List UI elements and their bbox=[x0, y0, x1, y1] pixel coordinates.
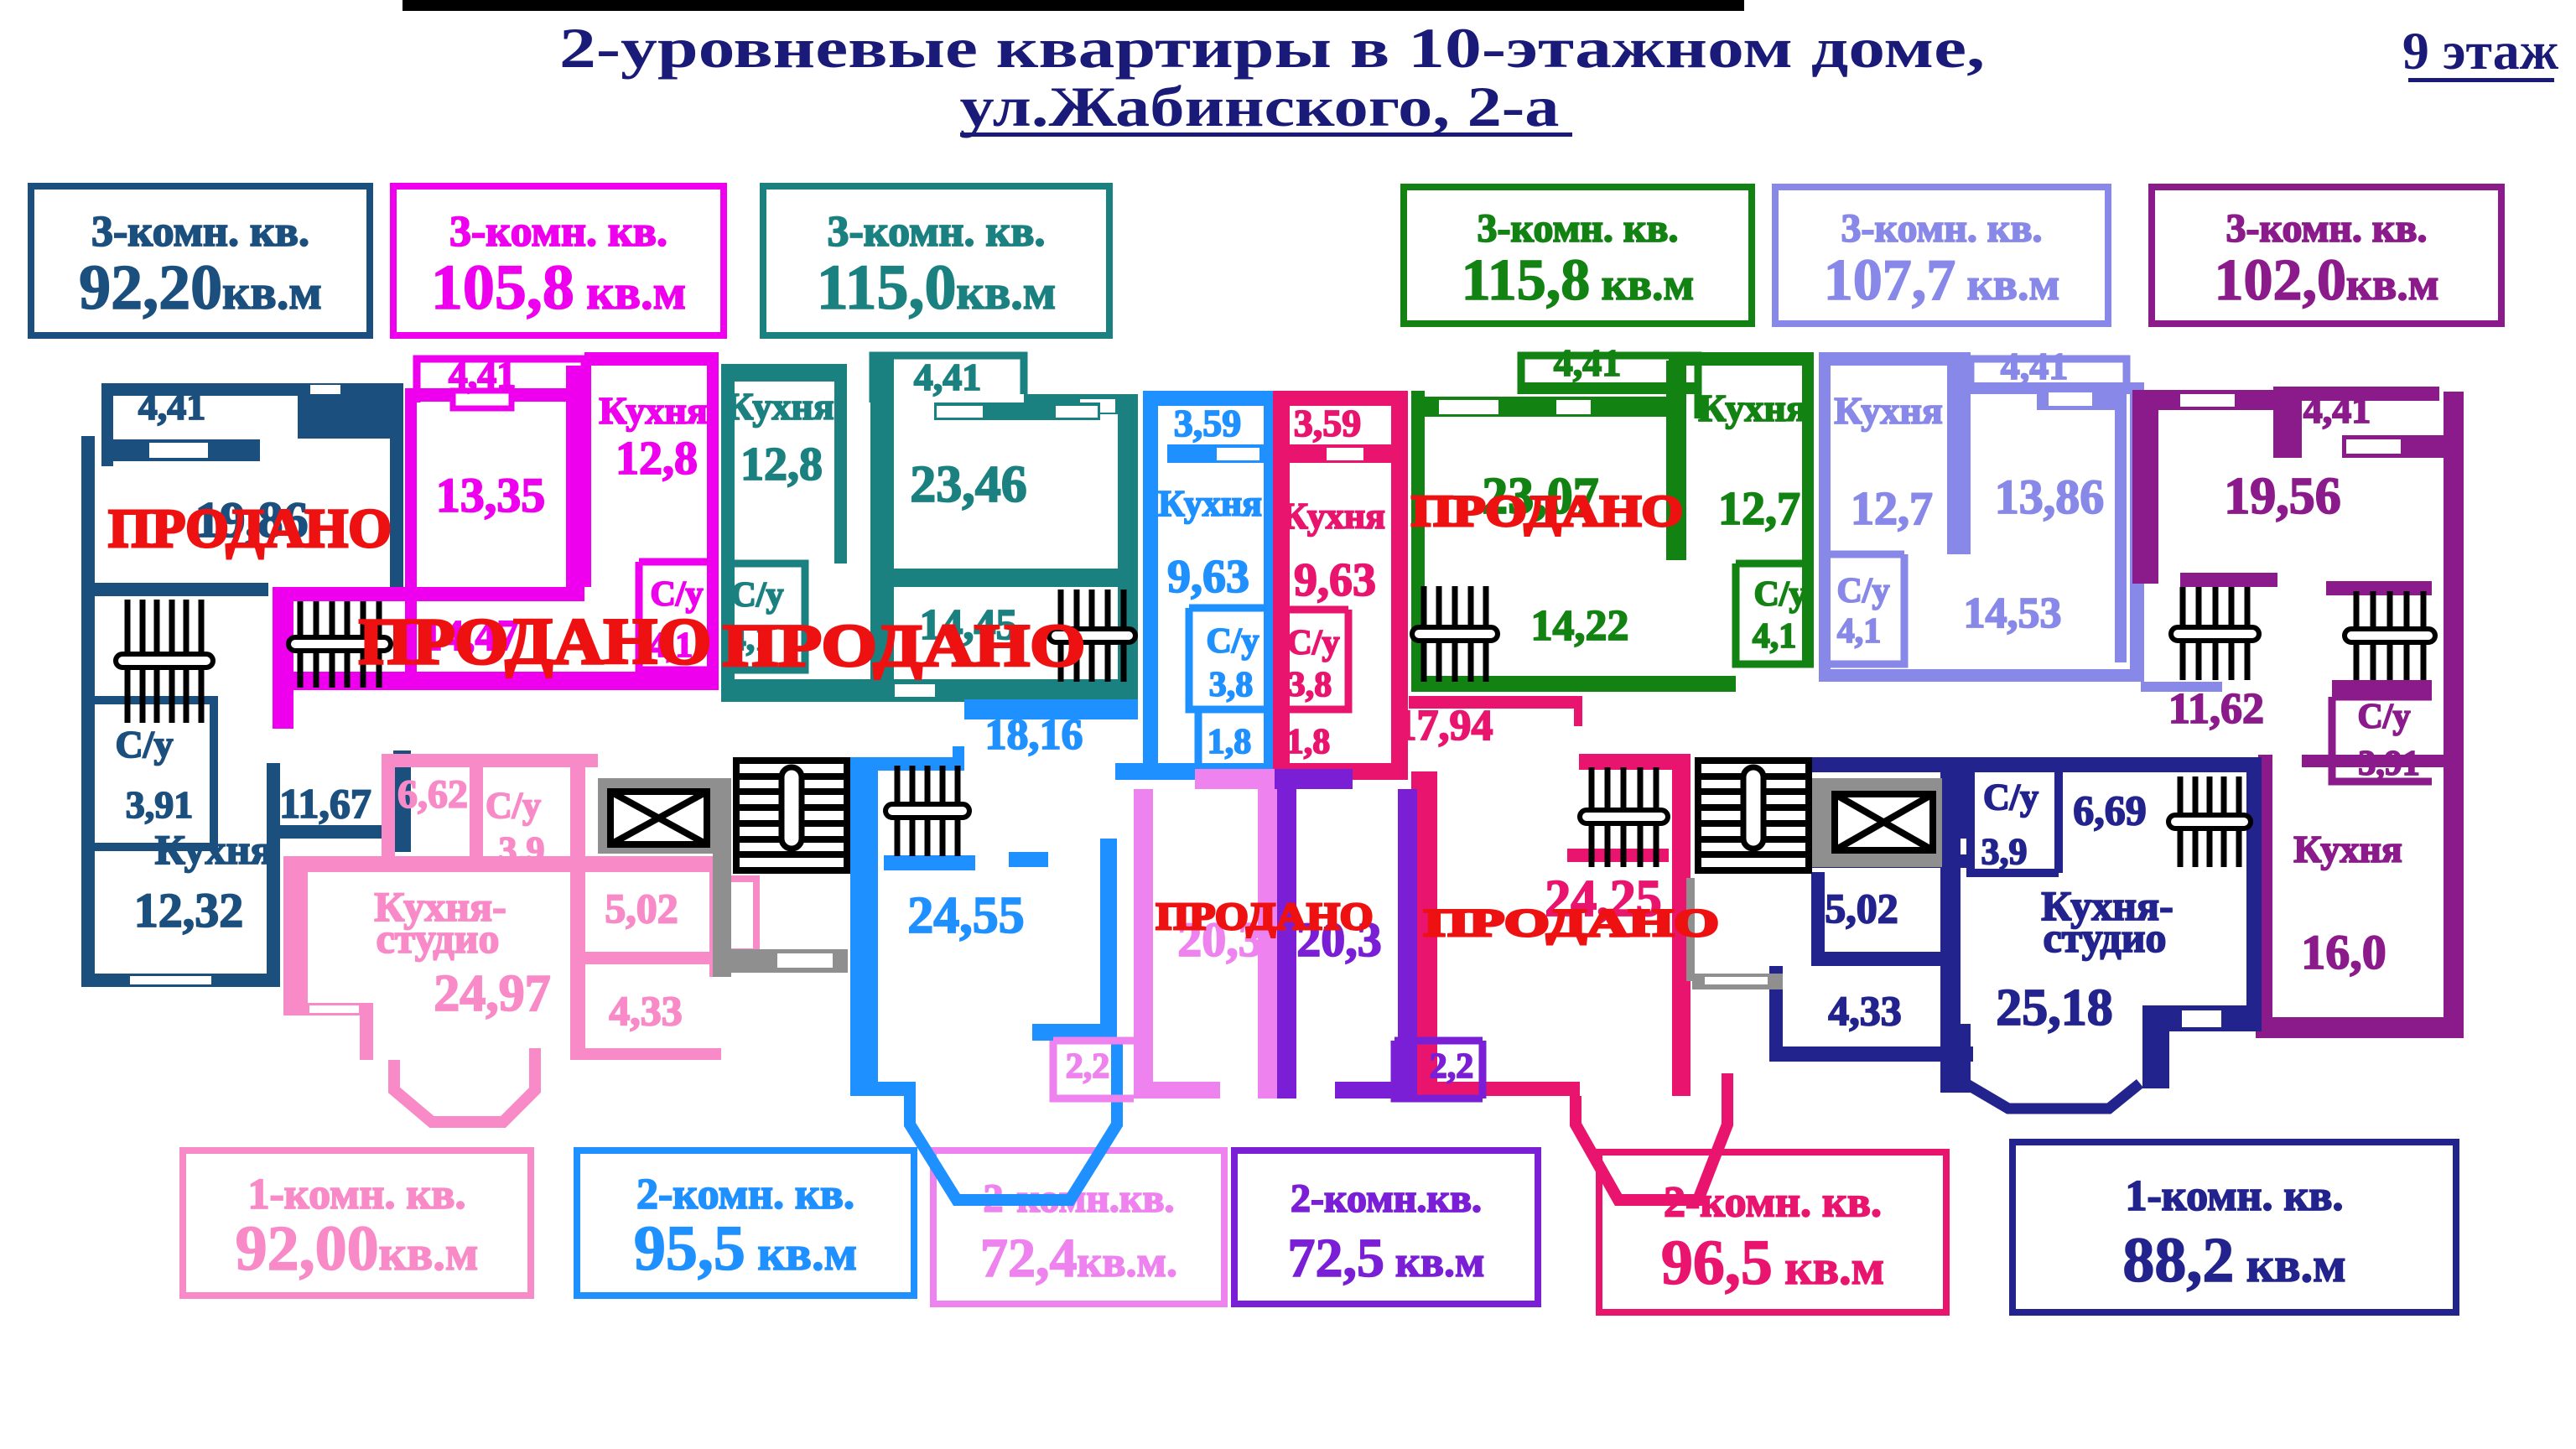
svg-text:5,02: 5,02 bbox=[1825, 885, 1898, 932]
svg-text:3,9: 3,9 bbox=[1981, 831, 2028, 872]
svg-text:17,94: 17,94 bbox=[1395, 702, 1493, 750]
svg-text:3,8: 3,8 bbox=[1209, 666, 1254, 704]
svg-text:16,0: 16,0 bbox=[2301, 925, 2386, 979]
svg-text:24,97: 24,97 bbox=[434, 965, 551, 1022]
svg-text:С/у: С/у bbox=[1837, 572, 1890, 610]
svg-text:12,8: 12,8 bbox=[615, 433, 698, 485]
svg-text:3-комн. кв.: 3-комн. кв. bbox=[827, 208, 1045, 256]
svg-text:С/у: С/у bbox=[1983, 776, 2038, 818]
svg-text:Кухня: Кухня bbox=[2293, 828, 2402, 870]
svg-text:14,22: 14,22 bbox=[1531, 602, 1629, 650]
svg-text:ПРОДАНО: ПРОДАНО bbox=[1424, 901, 1719, 945]
svg-text:2-уровневые квартиры в 10-этаж: 2-уровневые квартиры в 10-этажном доме, bbox=[559, 16, 1985, 80]
svg-text:5,02: 5,02 bbox=[605, 885, 678, 932]
svg-text:3,59: 3,59 bbox=[1294, 402, 1362, 444]
svg-text:12,7: 12,7 bbox=[1718, 483, 1800, 535]
svg-text:4,33: 4,33 bbox=[1828, 987, 1902, 1034]
svg-text:1,8: 1,8 bbox=[1286, 723, 1331, 761]
svg-text:2,2: 2,2 bbox=[1430, 1047, 1474, 1086]
svg-text:4,41: 4,41 bbox=[138, 385, 206, 428]
svg-text:3-комн. кв.: 3-комн. кв. bbox=[1841, 206, 2042, 251]
svg-text:ПРОДАНО: ПРОДАНО bbox=[359, 605, 712, 678]
svg-text:3-комн. кв.: 3-комн. кв. bbox=[91, 208, 309, 256]
svg-text:ПРОДАНО: ПРОДАНО bbox=[723, 612, 1086, 679]
svg-text:2,2: 2,2 bbox=[1066, 1047, 1110, 1086]
svg-text:4,41: 4,41 bbox=[449, 353, 517, 396]
svg-text:4,41: 4,41 bbox=[1554, 341, 1622, 384]
svg-text:С/у: С/у bbox=[486, 785, 541, 826]
svg-text:4,33: 4,33 bbox=[609, 987, 683, 1034]
svg-text:4,1: 4,1 bbox=[1753, 617, 1797, 656]
svg-text:Кухня: Кухня bbox=[1158, 483, 1262, 524]
svg-text:3,91: 3,91 bbox=[126, 783, 194, 826]
svg-text:Кухня: Кухня bbox=[1698, 387, 1807, 429]
svg-text:С/у: С/у bbox=[1287, 624, 1340, 662]
svg-text:С/у: С/у bbox=[1207, 622, 1259, 661]
svg-text:1,8: 1,8 bbox=[1207, 723, 1252, 761]
svg-text:11,67: 11,67 bbox=[279, 780, 371, 827]
svg-text:3-комн. кв.: 3-комн. кв. bbox=[1477, 206, 1678, 251]
svg-text:С/у: С/у bbox=[116, 723, 174, 766]
svg-text:24,55: 24,55 bbox=[907, 887, 1025, 944]
svg-text:Кухня: Кухня bbox=[1281, 496, 1385, 537]
svg-text:студио: студио bbox=[2043, 914, 2166, 961]
svg-text:студио: студио bbox=[376, 915, 499, 962]
svg-text:ул.Жабинского, 2-а: ул.Жабинского, 2-а bbox=[960, 75, 1560, 138]
svg-text:3,9: 3,9 bbox=[499, 829, 545, 870]
svg-text:11,62: 11,62 bbox=[2168, 685, 2264, 733]
svg-text:9 этаж: 9 этаж bbox=[2402, 21, 2559, 80]
svg-text:2-комн.кв.: 2-комн.кв. bbox=[1291, 1176, 1482, 1221]
svg-text:14,53: 14,53 bbox=[1964, 589, 2062, 637]
svg-text:12,8: 12,8 bbox=[740, 439, 823, 491]
svg-text:Кухня: Кухня bbox=[725, 385, 834, 428]
svg-text:4,41: 4,41 bbox=[914, 356, 982, 398]
svg-text:1-комн. кв.: 1-комн. кв. bbox=[2125, 1172, 2343, 1220]
svg-text:3-комн. кв.: 3-комн. кв. bbox=[2225, 206, 2427, 251]
svg-text:ПРОДАНО: ПРОДАНО bbox=[1411, 487, 1683, 536]
svg-text:3,59: 3,59 bbox=[1174, 402, 1242, 444]
svg-text:ПРОДАНО: ПРОДАНО bbox=[1156, 895, 1374, 937]
svg-text:ПРОДАНО: ПРОДАНО bbox=[108, 498, 392, 559]
svg-text:19,56: 19,56 bbox=[2224, 468, 2341, 525]
svg-text:4,41: 4,41 bbox=[2303, 388, 2371, 431]
svg-text:9,63: 9,63 bbox=[1167, 551, 1249, 603]
svg-text:С/у: С/у bbox=[2358, 698, 2411, 736]
svg-text:12,32: 12,32 bbox=[134, 883, 244, 937]
svg-text:9,63: 9,63 bbox=[1294, 554, 1376, 606]
svg-text:Кухня: Кухня bbox=[1834, 389, 1943, 432]
svg-text:6,62: 6,62 bbox=[397, 772, 468, 817]
svg-text:25,18: 25,18 bbox=[1996, 979, 2113, 1036]
svg-text:Кухня: Кухня bbox=[155, 826, 273, 873]
svg-text:1-комн. кв.: 1-комн. кв. bbox=[247, 1171, 465, 1218]
svg-text:С/у: С/у bbox=[731, 576, 784, 615]
svg-text:12,7: 12,7 bbox=[1851, 483, 1933, 535]
svg-text:13,86: 13,86 bbox=[1995, 470, 2105, 524]
svg-text:2-комн. кв.: 2-комн. кв. bbox=[636, 1171, 854, 1218]
svg-text:3-комн. кв.: 3-комн. кв. bbox=[449, 208, 667, 256]
svg-text:С/у: С/у bbox=[1754, 575, 1807, 614]
svg-text:3,8: 3,8 bbox=[1288, 666, 1332, 704]
svg-text:23,46: 23,46 bbox=[910, 456, 1027, 513]
svg-text:4,41: 4,41 bbox=[2001, 345, 2069, 387]
svg-text:3,91: 3,91 bbox=[2358, 745, 2420, 783]
svg-text:Кухня: Кухня bbox=[599, 389, 708, 432]
svg-text:4,1: 4,1 bbox=[1837, 612, 1882, 651]
svg-text:13,35: 13,35 bbox=[436, 468, 546, 522]
svg-text:18,16: 18,16 bbox=[985, 711, 1083, 759]
svg-text:6,69: 6,69 bbox=[2073, 787, 2147, 834]
